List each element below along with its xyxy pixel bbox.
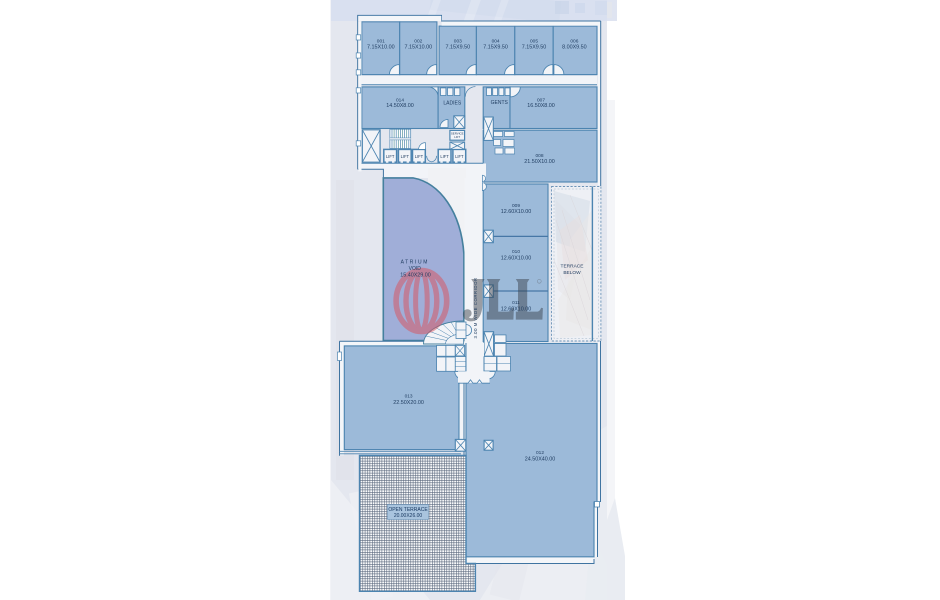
svg-text:7.15X10.00: 7.15X10.00: [405, 44, 433, 50]
svg-text:14.50X8.00: 14.50X8.00: [386, 103, 414, 109]
svg-text:22.50X20.00: 22.50X20.00: [393, 400, 424, 406]
svg-text:24.50X40.00: 24.50X40.00: [525, 456, 556, 462]
svg-text:012: 012: [536, 450, 544, 456]
svg-text:16.50X8.00: 16.50X8.00: [527, 103, 555, 109]
svg-text:LIFT: LIFT: [401, 154, 410, 159]
svg-text:7.15X9.50: 7.15X9.50: [446, 44, 471, 50]
svg-text:LIFT: LIFT: [455, 154, 464, 159]
svg-text:21.50X10.00: 21.50X10.00: [524, 159, 555, 165]
svg-text:OPEN TERRACE: OPEN TERRACE: [388, 507, 428, 513]
svg-text:12.60X10.00: 12.60X10.00: [501, 209, 532, 215]
svg-text:LIFT: LIFT: [454, 135, 460, 139]
svg-text:BELOW: BELOW: [563, 270, 581, 276]
svg-text:3.00 M WIDE CORRIDOR: 3.00 M WIDE CORRIDOR: [473, 277, 478, 338]
svg-text:010: 010: [512, 249, 520, 255]
svg-text:013: 013: [405, 394, 413, 400]
svg-text:7.15X9.50: 7.15X9.50: [522, 44, 547, 50]
svg-text:LIFT: LIFT: [415, 154, 424, 159]
svg-text:LADIES: LADIES: [443, 101, 461, 107]
svg-text:12.60X10.00: 12.60X10.00: [501, 255, 532, 261]
svg-text:15.40X29.00: 15.40X29.00: [400, 272, 431, 278]
svg-text:ATRIUM: ATRIUM: [401, 260, 429, 266]
svg-text:7.15X10.00: 7.15X10.00: [367, 44, 395, 50]
svg-text:12.60X10.00: 12.60X10.00: [501, 306, 532, 312]
svg-text:LIFT: LIFT: [440, 154, 449, 159]
svg-text:8.00X9.50: 8.00X9.50: [562, 44, 587, 50]
svg-text:TERRACE: TERRACE: [561, 263, 584, 269]
svg-text:20.00X26.00: 20.00X26.00: [394, 513, 423, 519]
svg-text:LIFT: LIFT: [386, 154, 395, 159]
svg-text:GENTS: GENTS: [491, 100, 509, 106]
svg-text:011: 011: [512, 300, 520, 306]
svg-text:VOID: VOID: [409, 266, 422, 272]
svg-text:7.15X9.50: 7.15X9.50: [483, 44, 508, 50]
